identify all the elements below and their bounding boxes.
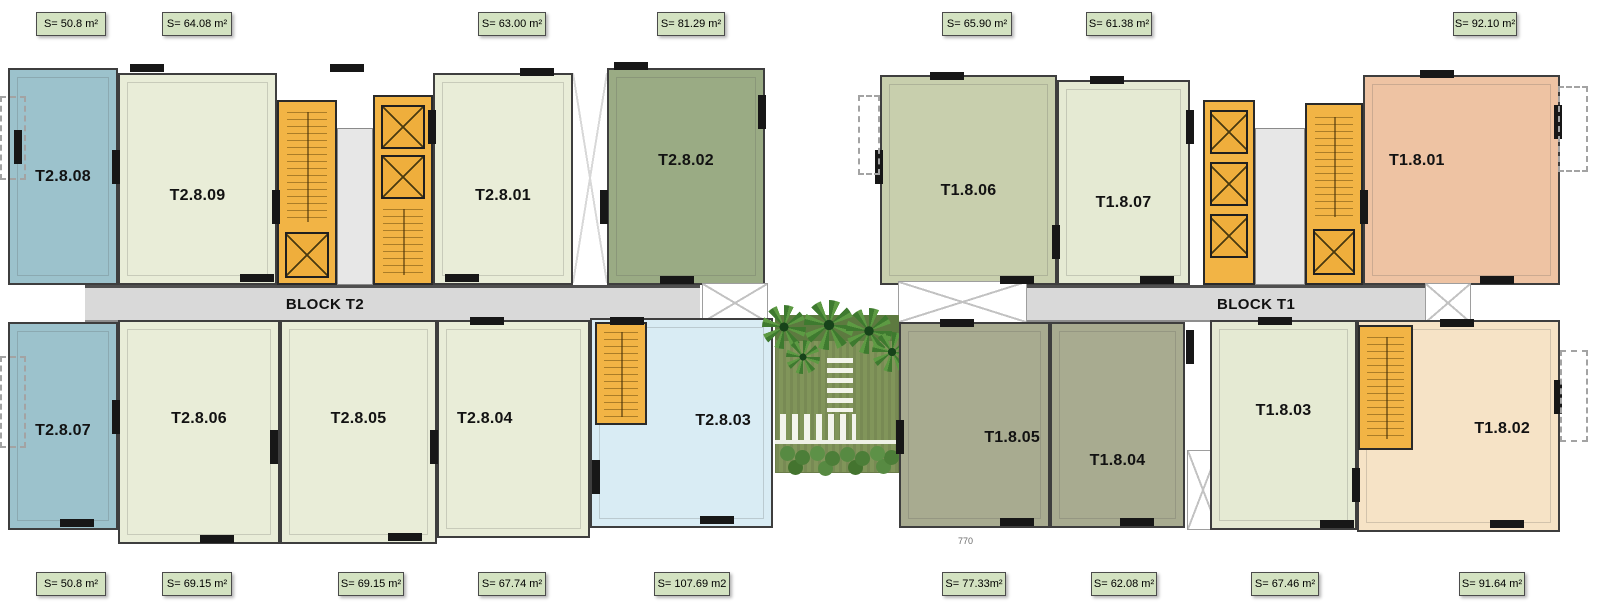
stair-core: [595, 322, 647, 425]
unit-t1-8-07[interactable]: T1.8.07: [1057, 80, 1190, 285]
corridor-block-t2: BLOCK T2: [85, 285, 700, 322]
elevator-cell: [1210, 110, 1248, 154]
area-label: S= 91.64 m²: [1459, 572, 1525, 596]
unit-label: T1.8.05: [901, 429, 1048, 447]
balcony-outline: [858, 95, 880, 175]
unit-t1-8-05[interactable]: T1.8.05: [899, 322, 1050, 528]
area-label: S= 67.74 m²: [478, 572, 546, 596]
unit-label: T1.8.04: [1052, 452, 1183, 470]
elevator-lobby: [337, 128, 373, 285]
unit-label: T2.8.06: [120, 410, 278, 428]
area-label: S= 64.08 m²: [162, 12, 232, 36]
stair-core: [277, 100, 337, 285]
unit-label: T1.8.03: [1212, 402, 1355, 420]
unit-label: T1.8.01: [1365, 152, 1558, 170]
stair-core: [1358, 325, 1413, 450]
elevator-cell: [285, 232, 329, 278]
unit-t2-8-02[interactable]: T2.8.02: [607, 68, 765, 285]
unit-label: T2.8.02: [609, 152, 763, 170]
corridor-block-t1: BLOCK T1: [1027, 285, 1425, 322]
unit-t2-8-01[interactable]: T2.8.01: [433, 73, 573, 285]
area-label: S= 69.15 m²: [162, 572, 232, 596]
dimension-text: 770: [958, 536, 973, 546]
expansion-joint: [898, 281, 1027, 323]
stair-core: [373, 95, 433, 285]
area-label: S= 77.33m²: [942, 572, 1006, 596]
elevator-cell: [381, 155, 425, 199]
unit-t1-8-03[interactable]: T1.8.03: [1210, 320, 1357, 530]
unit-t2-8-05[interactable]: T2.8.05: [280, 320, 437, 544]
elevator-cell: [381, 105, 425, 149]
stairs-icon: [604, 332, 638, 417]
expansion-joint: [702, 283, 768, 323]
area-label: S= 81.29 m²: [657, 12, 725, 36]
crosswalk-path: [780, 414, 856, 440]
path-line: [775, 440, 899, 444]
elevator-cell: [1210, 214, 1248, 258]
elevator-lobby: [1255, 128, 1305, 285]
area-label: S= 50.8 m²: [36, 12, 106, 36]
unit-label: T2.8.05: [282, 410, 435, 428]
area-label: S= 61.38 m²: [1086, 12, 1152, 36]
area-label: S= 50.8 m²: [36, 572, 106, 596]
balcony-outline: [0, 96, 26, 180]
area-label: S= 69.15 m²: [338, 572, 404, 596]
unit-label: T2.8.04: [439, 410, 588, 428]
unit-t1-8-04[interactable]: T1.8.04: [1050, 322, 1185, 528]
area-label: S= 92.10 m²: [1453, 12, 1517, 36]
unit-t1-8-06[interactable]: T1.8.06: [880, 75, 1057, 285]
stairs-icon: [287, 112, 327, 222]
unit-label: T2.8.09: [120, 187, 275, 205]
balcony-outline: [0, 356, 26, 448]
stairs-icon: [1315, 117, 1353, 217]
shrub-row: [780, 446, 795, 461]
area-label: S= 65.90 m²: [942, 12, 1012, 36]
unit-label: T1.8.07: [1059, 194, 1188, 212]
balcony-outline: [1558, 86, 1588, 172]
unit-t2-8-09[interactable]: T2.8.09: [118, 73, 277, 285]
stairs-icon: [383, 209, 423, 275]
palm-tree-icon: [786, 340, 820, 374]
unit-t2-8-06[interactable]: T2.8.06: [118, 320, 280, 544]
area-label: S= 62.08 m²: [1091, 572, 1157, 596]
unit-t1-8-01[interactable]: T1.8.01: [1363, 75, 1560, 285]
wall-segments-horizontal: [60, 519, 94, 527]
expansion-joint: [573, 73, 607, 283]
stairs-icon: [1367, 337, 1404, 439]
balcony-outline: [1560, 350, 1588, 442]
expansion-joint: [1425, 283, 1471, 323]
crosswalk-path: [827, 358, 853, 412]
elevator-cell: [1313, 229, 1355, 275]
area-label: S= 107.69 m2: [654, 572, 730, 596]
unit-label: T2.8.01: [435, 187, 571, 205]
unit-label: T1.8.06: [882, 182, 1055, 200]
area-label: S= 67.46 m²: [1251, 572, 1319, 596]
area-label: S= 63.00 m²: [478, 12, 546, 36]
unit-t2-8-04[interactable]: T2.8.04: [437, 320, 590, 538]
floor-plan-canvas: S= 50.8 m² S= 64.08 m² S= 63.00 m² S= 81…: [0, 0, 1600, 608]
elevator-core: [1203, 100, 1255, 285]
block-t1-label: BLOCK T1: [1217, 296, 1295, 313]
block-t2-label: BLOCK T2: [85, 296, 565, 313]
stair-core: [1305, 103, 1363, 285]
elevator-cell: [1210, 162, 1248, 206]
